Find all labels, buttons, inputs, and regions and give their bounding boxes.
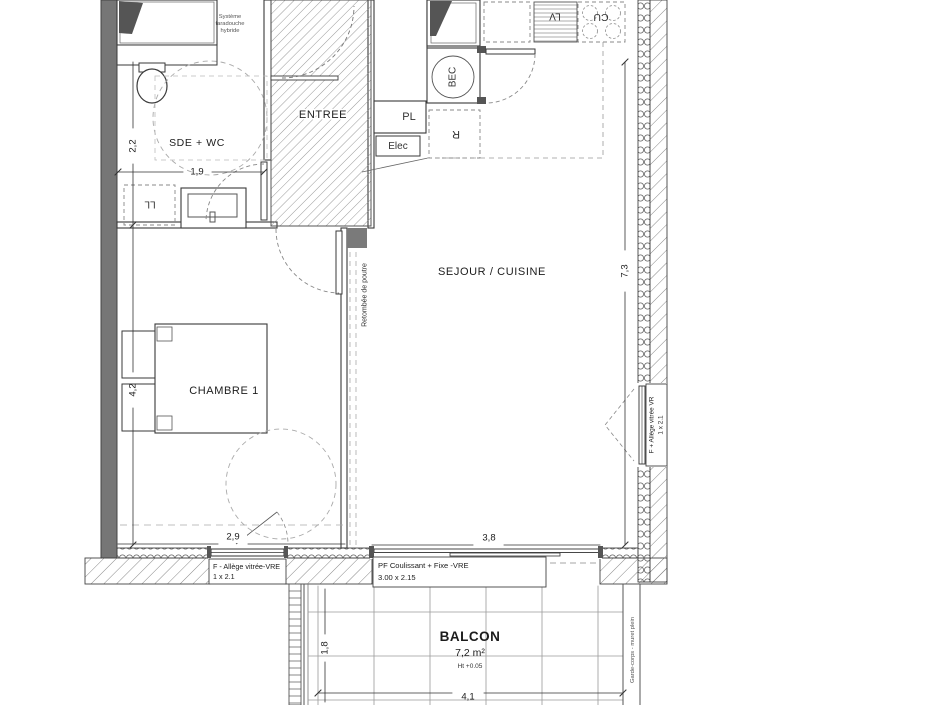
kitchen-zone: BEC R LV CU (427, 0, 625, 158)
window-bedroom: F - Allège vitrée-VRE 1 x 2.1 (207, 512, 288, 584)
dim-bedroom-width: 2,9 (226, 532, 239, 543)
turning-circle-bathroom (153, 61, 267, 175)
entry-zone: ENTREE (271, 0, 371, 226)
bec-label: BEC (448, 67, 459, 88)
floor-plan-drawing: Garde-corps - muret plein BALCON 7,2 m² … (0, 0, 940, 705)
kitchen-door-swing (486, 54, 535, 103)
floor-plan: Garde-corps - muret plein BALCON 7,2 m² … (0, 0, 940, 705)
dishwasher-label: LV (549, 11, 561, 22)
turning-circle-bedroom (226, 429, 336, 539)
window-bedroom-type: F - Allège vitrée-VRE (213, 562, 280, 571)
wall-left (101, 0, 117, 558)
window-side: F + Allège vitrée VR 1 x 2.1 (605, 383, 667, 467)
living-zone: SEJOUR / CUISINE Retombée de poutre (347, 228, 546, 546)
window-living-size: 3.00 x 2.15 (378, 573, 416, 582)
balcony-area: Garde-corps - muret plein BALCON 7,2 m² … (289, 584, 640, 705)
cooktop-label: CU (593, 11, 608, 23)
bedroom-label: CHAMBRE 1 (189, 385, 259, 397)
electrical-panel-label: Elec (388, 141, 407, 152)
heater-note-line1: Système (219, 14, 242, 20)
window-living: PF Coulissant + Fixe -VRE 3.00 x 2.15 (369, 545, 603, 587)
closet-label: PL (402, 111, 415, 123)
worktop (484, 2, 530, 42)
toilet (137, 69, 167, 103)
dim-facade-length: 7,3 (620, 264, 631, 277)
bathroom-label: SDE + WC (169, 137, 225, 149)
window-side-type: F + Allège vitrée VR (649, 396, 656, 453)
dim-balcony-length: 4,1 (461, 692, 474, 703)
balcony-label: BALCON (440, 629, 501, 644)
wall-bottom-mid (285, 558, 372, 584)
window-living-type: PF Coulissant + Fixe -VRE (378, 561, 469, 570)
heater-note-line2: taradouche (215, 21, 244, 27)
bedroom-door-leaf (336, 231, 342, 294)
shower-ledge (117, 45, 217, 65)
bedroom-door-swing (276, 229, 339, 293)
balcony-tile-grid (308, 586, 623, 705)
beam-block (347, 228, 367, 248)
wall-right (650, 0, 667, 582)
balcony-left-railing (289, 584, 301, 705)
wall-bottom-left (85, 558, 210, 584)
closet-box (374, 101, 426, 133)
balcony-railing-note: Garde-corps - muret plein (630, 617, 636, 683)
exterior-walls (85, 0, 667, 584)
dim-balcony-depth: 1,8 (320, 641, 331, 654)
dim-bathroom-depth: 1,9 (190, 167, 203, 178)
kitchen-door-leaf (486, 49, 535, 54)
balcony-area-value: 7,2 m² (455, 647, 485, 659)
nightstand (122, 331, 155, 378)
fridge-label: R (452, 128, 460, 140)
bathroom-zone: SDE + WC Système taradouche hybride LL (117, 0, 267, 228)
beam-note: Retombée de poutre (362, 263, 369, 327)
washing-machine-label: LL (144, 199, 156, 210)
living-label: SEJOUR / CUISINE (438, 266, 546, 278)
balcony-height-note: Ht +0.05 (458, 663, 483, 670)
wall-bathroom-entry (264, 0, 271, 160)
entry-label: ENTREE (299, 109, 347, 121)
bathroom-door-leaf (261, 162, 267, 220)
bedroom-zone: CHAMBRE 1 (120, 229, 347, 539)
heater-note-line3: hybride (220, 28, 239, 34)
dim-bathroom-width: 2,2 (128, 139, 139, 152)
window-bedroom-size: 1 x 2.1 (213, 572, 235, 581)
window-side-size: 1 x 2.1 (658, 415, 665, 435)
dim-living-bay: 3,8 (482, 533, 495, 544)
dim-bedroom-length: 4,2 (128, 383, 139, 396)
